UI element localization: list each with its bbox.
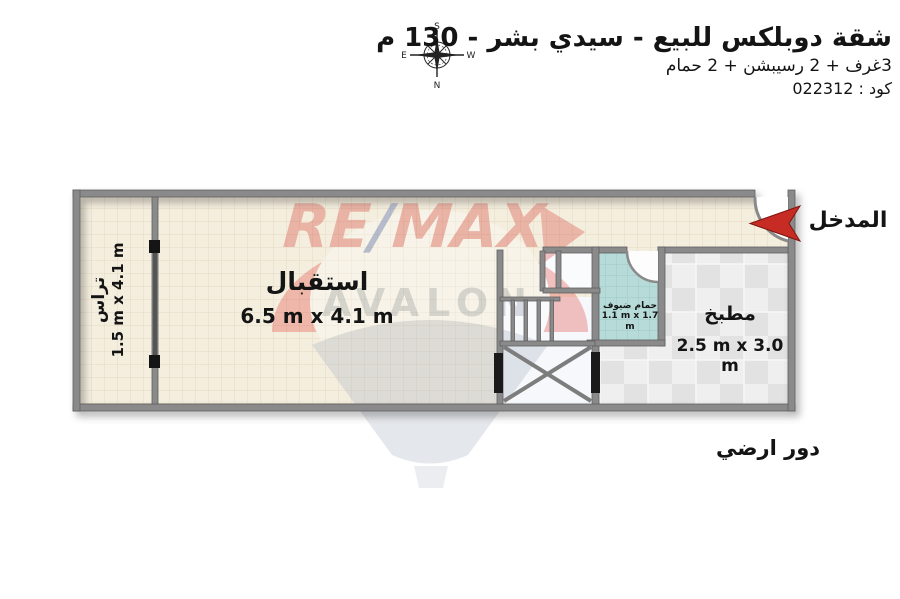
hall-door-jamb [494, 353, 503, 393]
stair-tread [550, 300, 554, 341]
page-title: شقة دوبلكس للبيع - سيدي بشر - 130 م [272, 24, 892, 54]
stair-tread [524, 300, 528, 341]
kitchen-room-label: مطبخ [667, 304, 793, 326]
page-subtitle: 3غرف + 2 رسيبشن + 2 حمام [472, 57, 892, 77]
entrance-label: المدخل [798, 208, 898, 233]
terrace-name: تراس [90, 230, 110, 370]
stair-tread [537, 300, 541, 341]
guest-bathroom-name: حمام ضيوف [596, 301, 664, 311]
guest-bathroom-dims: 1.1 m x 1.7 m [596, 311, 664, 332]
reception-room-dims: 6.5 m x 4.1 m [217, 305, 417, 328]
compass-north: N [434, 81, 441, 91]
reception-room-label: استقبال [217, 268, 417, 297]
listing-code: كود : 022312 [472, 80, 892, 98]
kitchen-room-dims: 2.5 m x 3.0 m [667, 337, 793, 376]
terrace-room-label: تراس 1.5 m x 4.1 m [90, 230, 134, 370]
floorplan-page: RE/MAX AVALON [0, 0, 900, 599]
balloon-basket [414, 466, 448, 488]
watermark-brand: RE/MAX [281, 192, 550, 262]
guest-bathroom-label: حمام ضيوف 1.1 m x 1.7 m [596, 301, 664, 332]
floor-level-label: دور ارضي [708, 436, 828, 460]
terrace-dims: 1.5 m x 4.1 m [110, 230, 127, 370]
stair-tread [511, 300, 515, 341]
kitchen-door-jamb [591, 352, 600, 393]
